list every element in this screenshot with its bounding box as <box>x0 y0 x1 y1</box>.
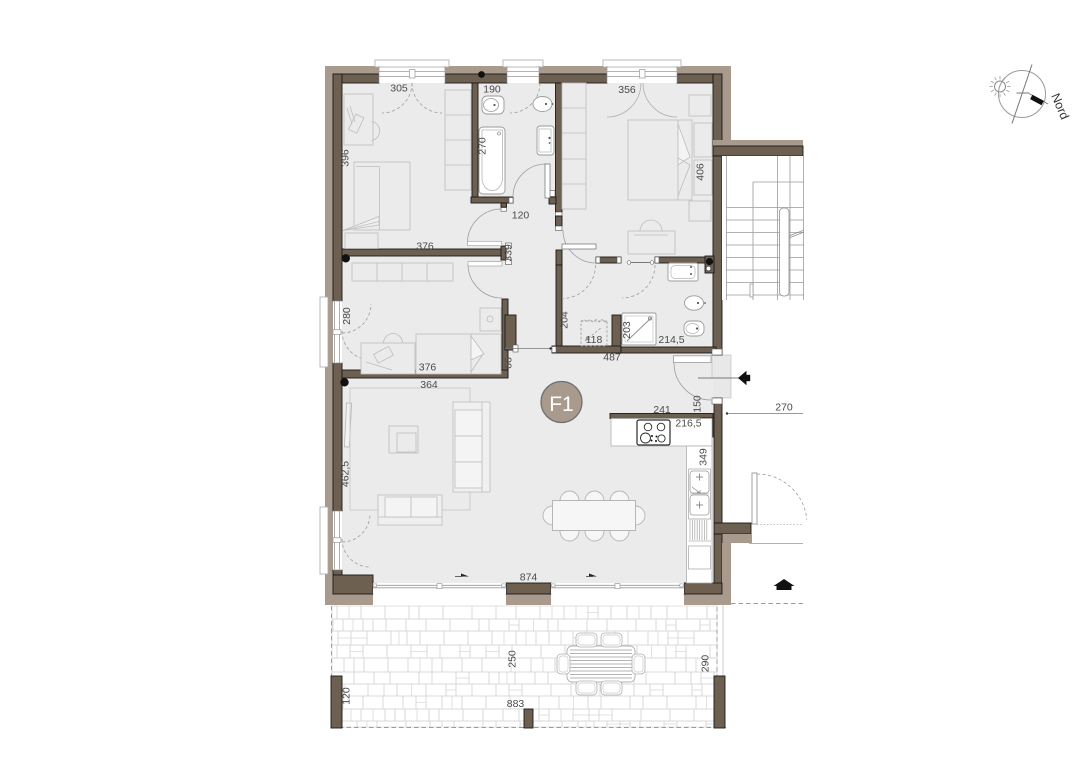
svg-text:F1: F1 <box>549 393 574 416</box>
svg-text:Nord: Nord <box>1048 91 1071 121</box>
svg-text:120: 120 <box>341 687 353 705</box>
svg-text:339: 339 <box>503 244 515 262</box>
svg-text:874: 874 <box>520 572 538 584</box>
svg-text:118: 118 <box>586 334 603 346</box>
svg-text:376: 376 <box>419 362 437 374</box>
svg-text:190: 190 <box>483 83 501 95</box>
svg-text:203: 203 <box>621 321 633 339</box>
svg-text:204: 204 <box>559 311 571 329</box>
svg-text:241: 241 <box>653 404 671 416</box>
svg-text:270: 270 <box>775 402 793 414</box>
svg-text:462,5: 462,5 <box>340 461 352 487</box>
svg-text:406: 406 <box>695 163 707 181</box>
svg-text:396: 396 <box>340 149 352 167</box>
svg-text:305: 305 <box>390 83 408 95</box>
svg-text:250: 250 <box>507 650 519 668</box>
svg-text:356: 356 <box>618 84 636 96</box>
svg-text:883: 883 <box>507 698 525 710</box>
svg-text:376: 376 <box>416 241 434 253</box>
svg-text:216,5: 216,5 <box>675 418 701 430</box>
svg-text:214,5: 214,5 <box>658 334 684 346</box>
svg-text:270: 270 <box>477 137 489 155</box>
svg-text:280: 280 <box>341 307 353 325</box>
svg-text:349: 349 <box>698 448 710 466</box>
svg-text:487: 487 <box>603 352 621 364</box>
svg-text:150: 150 <box>692 395 704 413</box>
svg-text:66: 66 <box>503 357 515 369</box>
svg-text:364: 364 <box>420 379 438 391</box>
svg-text:120: 120 <box>512 210 530 222</box>
svg-text:290: 290 <box>700 655 712 673</box>
